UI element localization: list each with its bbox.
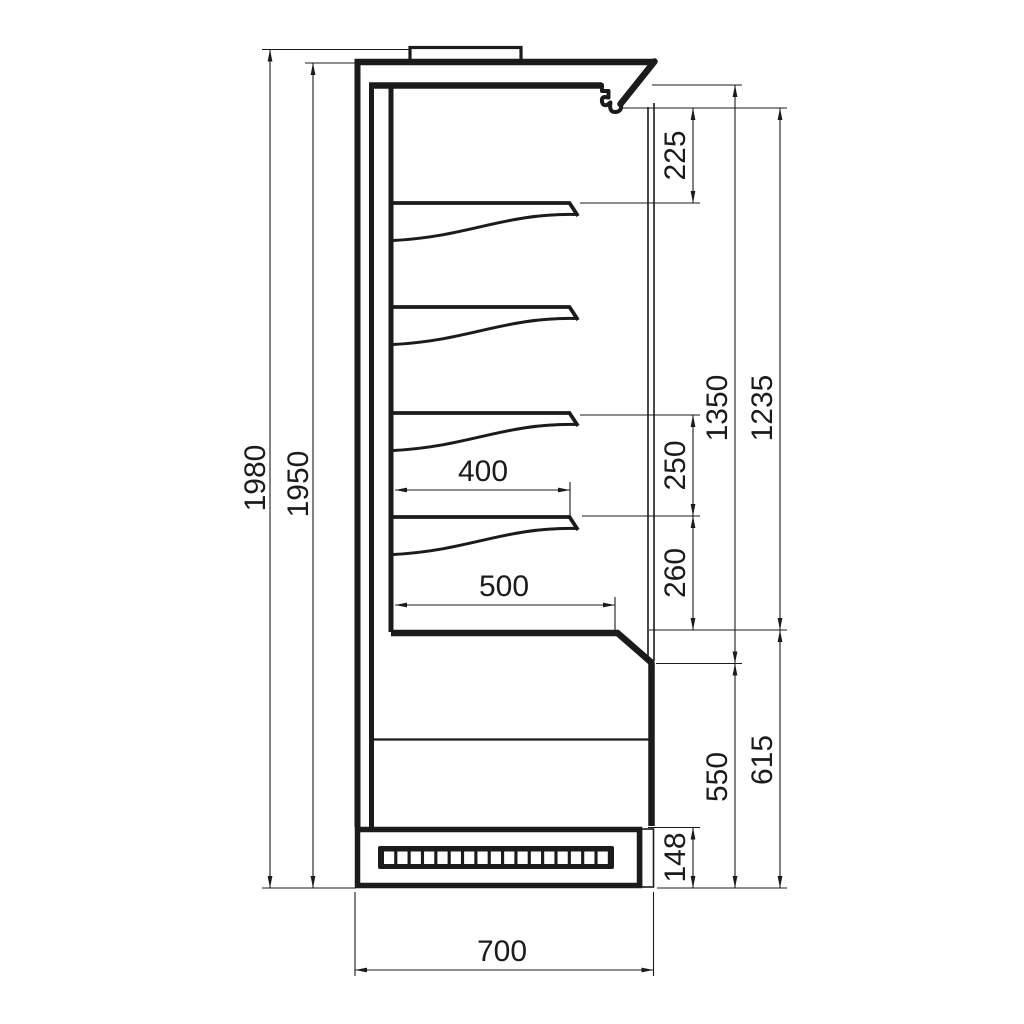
grille-slot xyxy=(558,852,568,865)
grille-slot xyxy=(411,852,421,865)
shelf-3 xyxy=(393,413,578,451)
shelf-4 xyxy=(393,517,578,555)
ventilation-grille xyxy=(378,846,614,869)
grille-slot xyxy=(477,852,487,865)
grille-slot xyxy=(571,852,581,865)
grille-slot xyxy=(504,852,514,865)
shelf-underside xyxy=(393,424,578,450)
dim-label-1980: 1980 xyxy=(239,445,272,512)
cabinet-section-drawing: 1980 1950 225 1350 1235 250 260 148 550 … xyxy=(0,0,1024,1024)
grille-slot xyxy=(531,852,541,865)
canopy-front-edge xyxy=(621,62,655,105)
extension-lines xyxy=(262,50,787,977)
dimension-labels: 1980 1950 225 1350 1235 250 260 148 550 … xyxy=(239,130,779,968)
grille-slot xyxy=(384,852,394,865)
grille-slot xyxy=(437,852,447,865)
shelf-2 xyxy=(393,307,578,345)
grille-slot xyxy=(544,852,554,865)
dim-label-615: 615 xyxy=(746,735,779,785)
shelf-underside xyxy=(393,214,578,240)
grille-slot xyxy=(424,852,434,865)
grille-slot xyxy=(598,852,608,865)
dim-label-1950: 1950 xyxy=(282,451,315,518)
dim-label-250: 250 xyxy=(659,440,692,490)
shelf-underside xyxy=(393,528,578,554)
dim-label-1350: 1350 xyxy=(701,375,734,442)
technical-drawing-canvas: 1980 1950 225 1350 1235 250 260 148 550 … xyxy=(0,0,1024,1024)
grille-slot xyxy=(464,852,474,865)
base-front-strip xyxy=(642,829,654,887)
grille-slot xyxy=(451,852,461,865)
dim-label-500: 500 xyxy=(479,570,529,603)
dim-label-148: 148 xyxy=(659,832,692,882)
dim-label-700: 700 xyxy=(477,935,527,968)
grille-slot xyxy=(491,852,501,865)
dim-label-1235: 1235 xyxy=(746,375,779,442)
bottom-deck xyxy=(391,633,653,664)
dim-label-260: 260 xyxy=(659,548,692,598)
grille-slot xyxy=(584,852,594,865)
dim-label-550: 550 xyxy=(701,752,734,802)
grille-slot xyxy=(397,852,407,865)
dim-label-400: 400 xyxy=(458,455,508,488)
shelf-1 xyxy=(393,203,578,241)
dim-label-225: 225 xyxy=(659,130,692,180)
grille-slot xyxy=(518,852,528,865)
shelf-underside xyxy=(393,318,578,344)
air-outlet-profile xyxy=(602,85,621,112)
